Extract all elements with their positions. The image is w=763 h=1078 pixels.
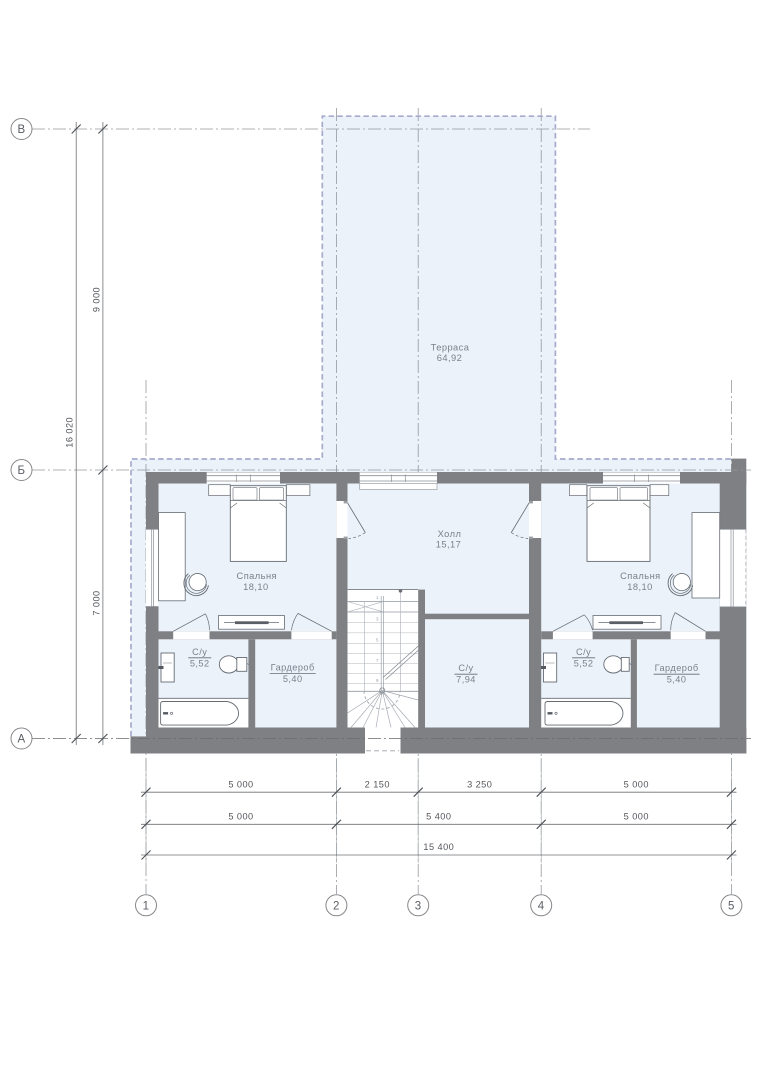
svg-text:5,52: 5,52 — [190, 658, 210, 668]
svg-text:16 020: 16 020 — [65, 417, 75, 448]
svg-text:Спальня: Спальня — [237, 571, 278, 581]
svg-text:3: 3 — [376, 617, 379, 622]
svg-text:1: 1 — [376, 595, 379, 600]
svg-text:15 400: 15 400 — [423, 842, 454, 852]
svg-text:18,10: 18,10 — [627, 582, 653, 592]
svg-text:5 400: 5 400 — [426, 812, 451, 822]
svg-text:4: 4 — [538, 900, 545, 912]
svg-text:5 000: 5 000 — [228, 812, 253, 822]
svg-text:С/у: С/у — [192, 647, 207, 657]
svg-text:5 000: 5 000 — [228, 780, 253, 790]
svg-text:Холл: Холл — [438, 529, 462, 539]
svg-text:С/у: С/у — [458, 663, 473, 673]
svg-text:В: В — [17, 124, 25, 136]
svg-text:9 000: 9 000 — [91, 287, 101, 312]
svg-text:7: 7 — [376, 658, 379, 663]
svg-text:5: 5 — [376, 638, 379, 643]
svg-text:9: 9 — [376, 678, 379, 683]
svg-text:7,94: 7,94 — [456, 675, 476, 685]
svg-text:2: 2 — [333, 900, 340, 912]
svg-text:5: 5 — [728, 900, 735, 912]
svg-text:5,40: 5,40 — [667, 675, 687, 685]
svg-text:Б: Б — [18, 465, 26, 477]
svg-text:7 000: 7 000 — [91, 590, 101, 615]
svg-text:С/у: С/у — [576, 647, 591, 657]
svg-text:Спальня: Спальня — [620, 571, 661, 581]
svg-text:18,10: 18,10 — [243, 582, 269, 592]
svg-text:Терраса: Терраса — [431, 343, 470, 353]
svg-text:15,17: 15,17 — [436, 540, 462, 550]
svg-text:А: А — [17, 734, 25, 746]
svg-text:64,92: 64,92 — [437, 353, 463, 363]
svg-text:Гардероб: Гардероб — [271, 663, 315, 673]
svg-text:2 150: 2 150 — [365, 780, 390, 790]
svg-text:5,40: 5,40 — [283, 674, 303, 684]
svg-text:3: 3 — [415, 900, 422, 912]
svg-text:5,52: 5,52 — [574, 658, 594, 668]
svg-text:Гардероб: Гардероб — [655, 663, 699, 673]
svg-text:3 250: 3 250 — [467, 780, 492, 790]
svg-text:1: 1 — [143, 900, 150, 912]
svg-text:5 000: 5 000 — [624, 780, 649, 790]
svg-text:5 000: 5 000 — [624, 812, 649, 822]
